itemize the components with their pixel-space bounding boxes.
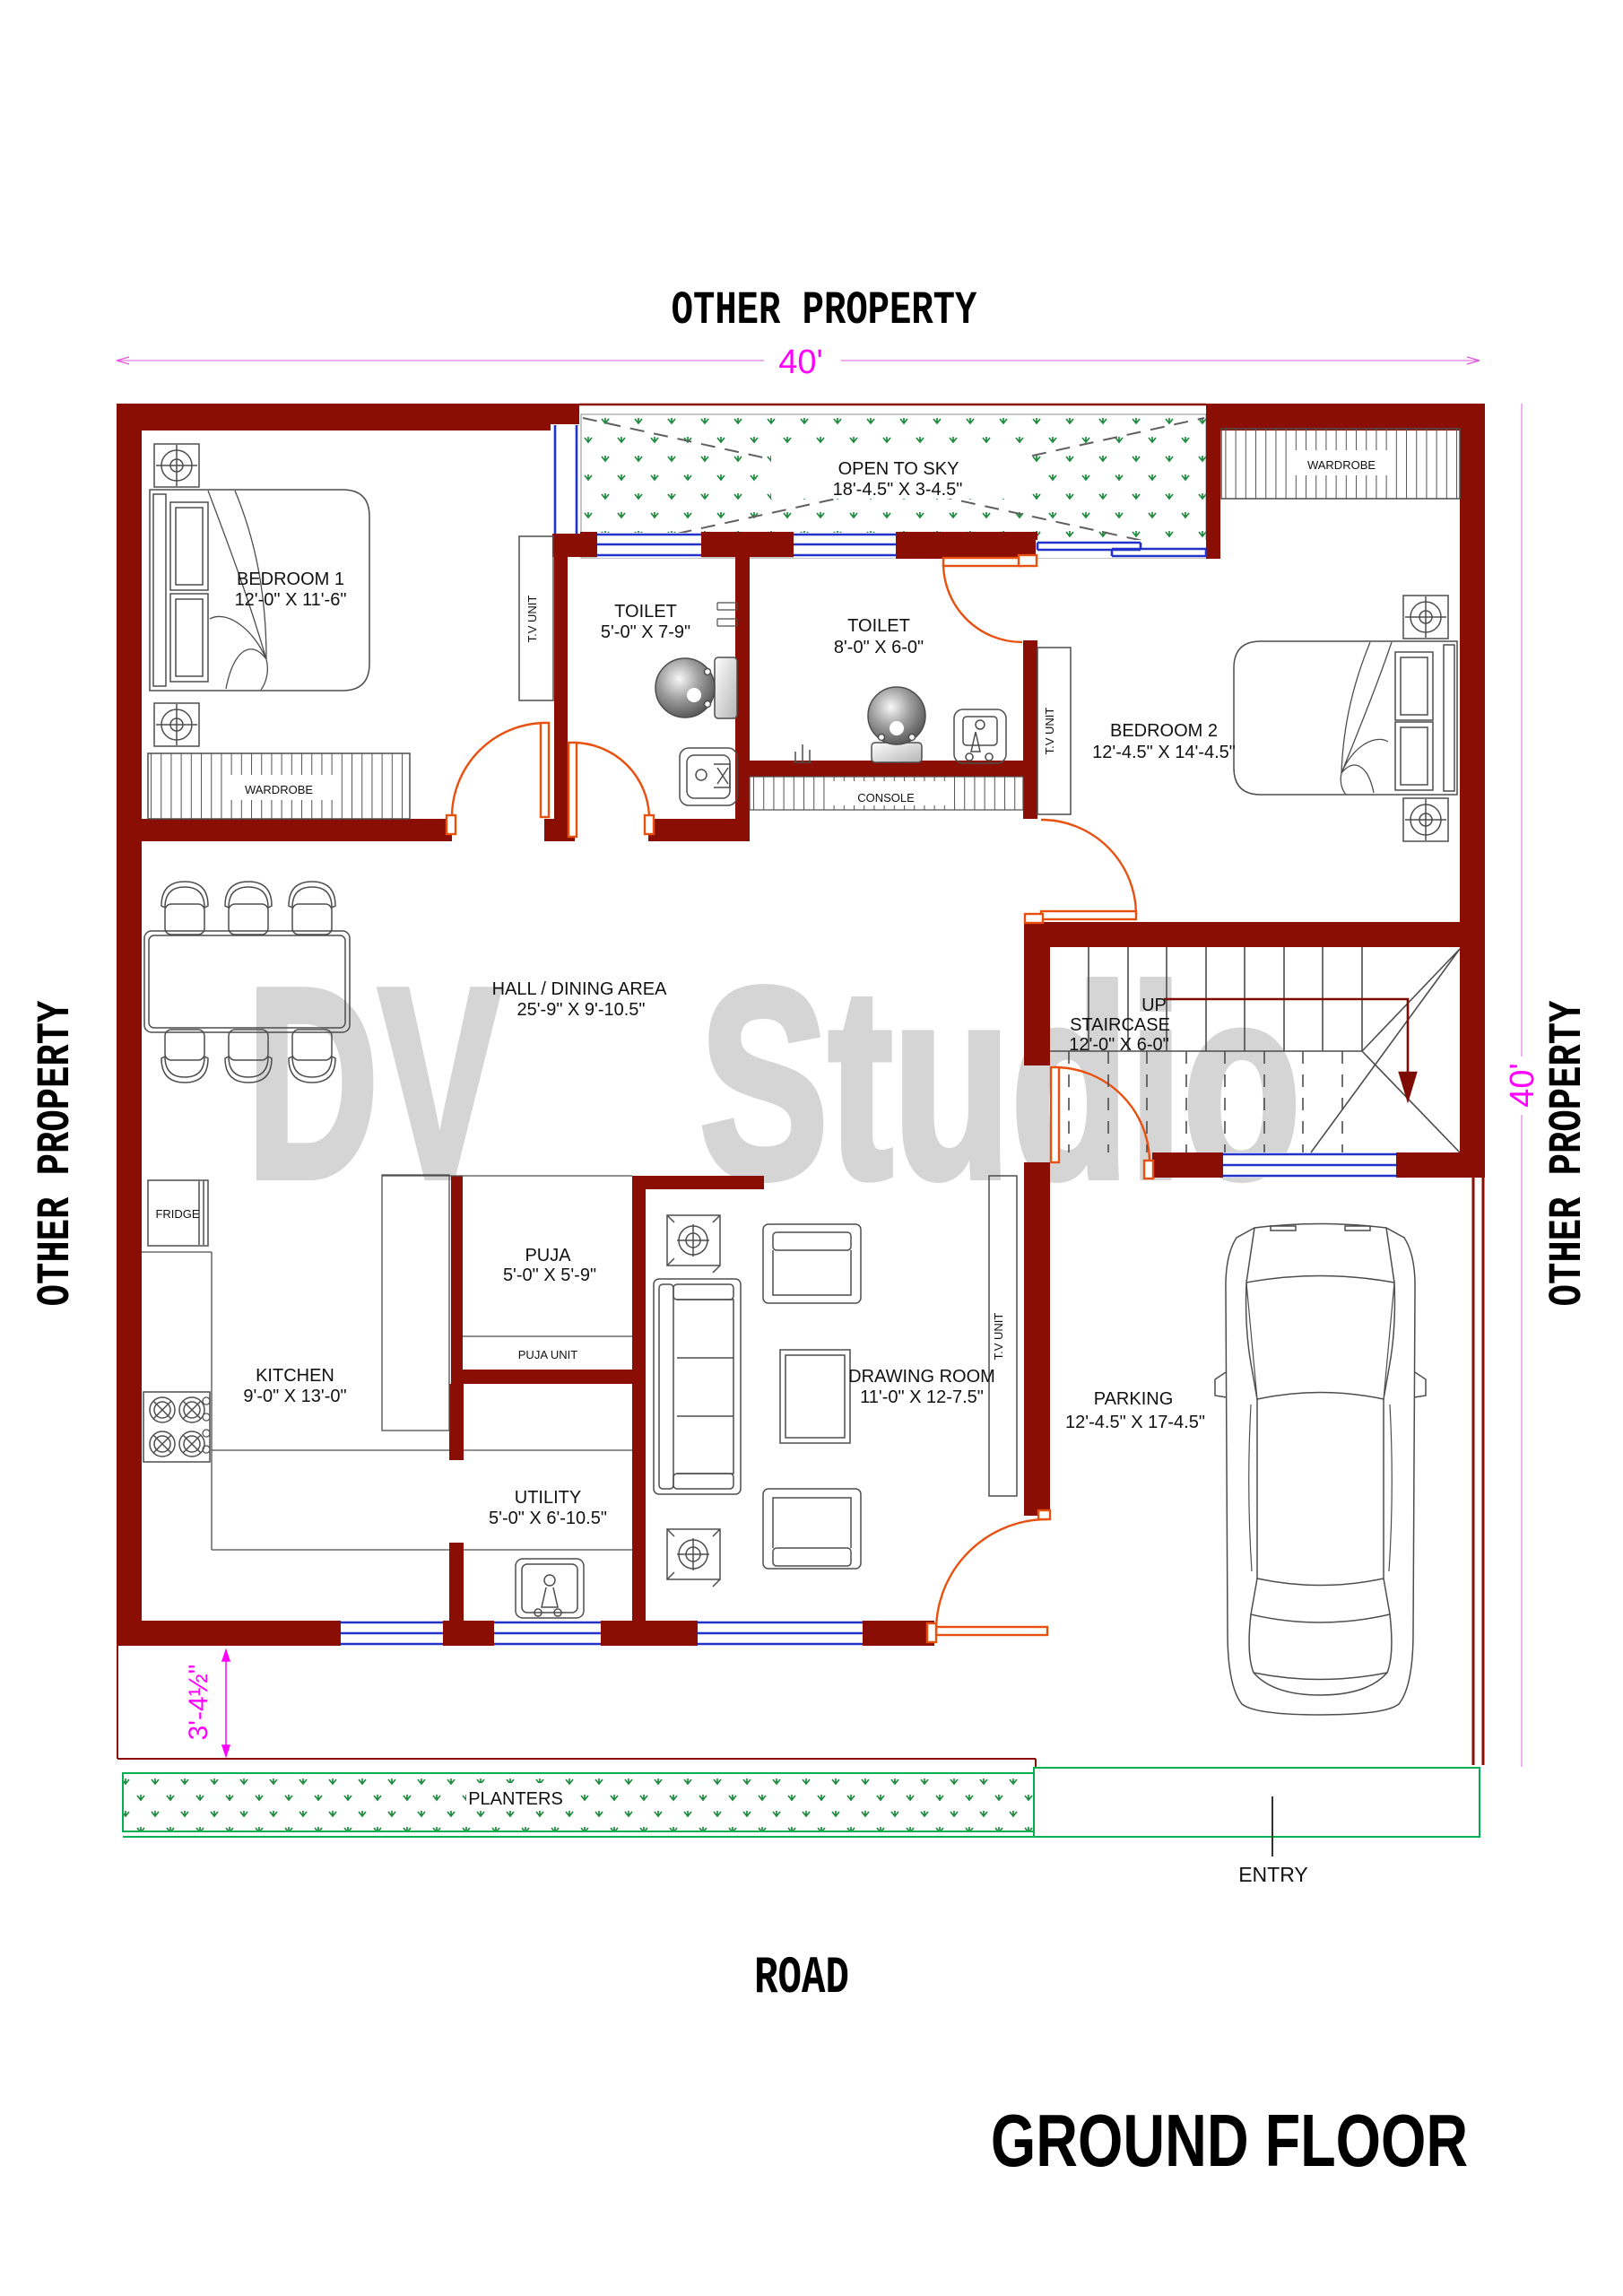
svg-text:TOILET: TOILET: [614, 602, 677, 622]
svg-text:HALL / DINING AREA: HALL / DINING AREA: [492, 979, 668, 999]
svg-text:12'-0" X 6-0": 12'-0" X 6-0": [1069, 1035, 1168, 1055]
svg-text:TOILET: TOILET: [847, 616, 910, 636]
svg-text:DV: DV: [247, 932, 501, 1235]
svg-text:18'-4.5" X 3-4.5": 18'-4.5" X 3-4.5": [833, 480, 963, 500]
svg-text:5'-0" X 6'-10.5": 5'-0" X 6'-10.5": [489, 1509, 607, 1528]
svg-text:9'-0" X 13'-0": 9'-0" X 13'-0": [243, 1387, 346, 1406]
svg-text:STAIRCASE: STAIRCASE: [1070, 1015, 1170, 1035]
svg-text:BEDROOM 1: BEDROOM 1: [237, 570, 344, 589]
svg-text:ROAD: ROAD: [754, 1950, 849, 2008]
svg-text:WARDROBE: WARDROBE: [245, 783, 313, 796]
svg-text:12'-0" X 11'-6": 12'-0" X 11'-6": [235, 590, 347, 610]
svg-text:GROUND FLOOR: GROUND FLOOR: [991, 2099, 1468, 2182]
svg-text:5'-0" X 5'-9": 5'-0" X 5'-9": [503, 1265, 596, 1285]
svg-text:KITCHEN: KITCHEN: [256, 1366, 334, 1386]
svg-text:DRAWING ROOM: DRAWING ROOM: [848, 1367, 995, 1387]
svg-text:OTHER PROPERTY: OTHER PROPERTY: [1542, 1001, 1595, 1307]
svg-text:11'-0" X 12-7.5": 11'-0" X 12-7.5": [860, 1387, 984, 1407]
svg-text:T.V UNIT: T.V UNIT: [1043, 708, 1056, 755]
svg-text:40': 40': [778, 344, 823, 381]
svg-text:T.V UNIT: T.V UNIT: [525, 596, 539, 643]
svg-text:PUJA UNIT: PUJA UNIT: [518, 1348, 578, 1361]
svg-text:PLANTERS: PLANTERS: [468, 1789, 563, 1809]
svg-text:OPEN TO SKY: OPEN TO SKY: [838, 459, 959, 479]
svg-text:ENTRY: ENTRY: [1238, 1863, 1308, 1886]
svg-text:UP: UP: [1141, 996, 1167, 1015]
svg-text:12'-4.5" X 17-4.5": 12'-4.5" X 17-4.5": [1065, 1413, 1205, 1432]
svg-text:PUJA: PUJA: [525, 1246, 571, 1265]
svg-text:12'-4.5" X 14'-4.5": 12'-4.5" X 14'-4.5": [1092, 743, 1236, 762]
svg-text:PARKING: PARKING: [1094, 1389, 1174, 1409]
svg-text:UTILITY: UTILITY: [515, 1488, 581, 1508]
svg-text:T.V UNIT: T.V UNIT: [992, 1313, 1005, 1361]
svg-text:CONSOLE: CONSOLE: [857, 791, 915, 804]
svg-text:Studio: Studio: [699, 931, 1301, 1234]
svg-text:BEDROOM 2: BEDROOM 2: [1110, 721, 1218, 741]
svg-text:OTHER PROPERTY: OTHER PROPERTY: [672, 285, 977, 338]
svg-text:WARDROBE: WARDROBE: [1307, 458, 1376, 472]
svg-text:8'-0" X 6-0": 8'-0" X 6-0": [834, 638, 924, 657]
svg-text:5'-0" X 7-9": 5'-0" X 7-9": [601, 622, 690, 642]
svg-text:OTHER PROPERTY: OTHER PROPERTY: [30, 1001, 83, 1307]
svg-text:40': 40': [1504, 1063, 1541, 1108]
svg-text:25'-9" X 9'-10.5": 25'-9" X 9'-10.5": [516, 1000, 645, 1020]
svg-text:FRIDGE: FRIDGE: [155, 1207, 199, 1221]
svg-text:3'-4½": 3'-4½": [184, 1665, 213, 1741]
